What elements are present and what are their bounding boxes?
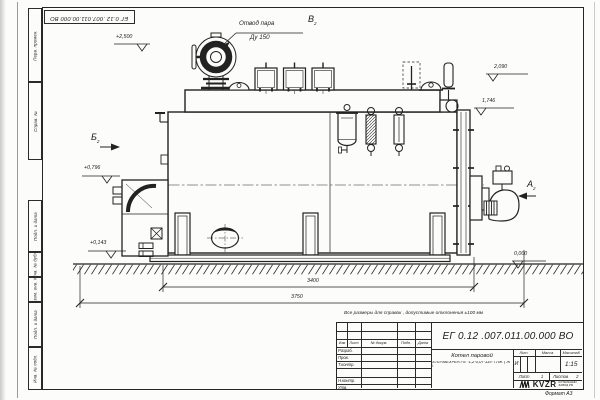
- tb-line: [337, 368, 431, 369]
- view-arrow-a: [518, 193, 536, 200]
- tb-sheets-cell: Листов 2: [549, 372, 582, 380]
- safety-valve-1: [255, 63, 277, 95]
- tb-col-list: Лист: [347, 339, 361, 347]
- tb-col-izm: Изм: [337, 339, 347, 347]
- safety-valve-3: [312, 63, 334, 95]
- kvzr-spring-icon: [519, 380, 531, 388]
- elevation-ground: 0,000: [514, 252, 527, 257]
- tb-sheet-label: Лист: [519, 374, 530, 379]
- tb-line: [527, 356, 528, 372]
- ground-line: [73, 264, 584, 274]
- view-arrow-b: [100, 144, 120, 151]
- tb-line: [397, 323, 398, 388]
- elevation-left-lower: +0,143: [90, 241, 106, 246]
- dimension-3400: 3400: [307, 279, 319, 284]
- view-letter-b: Б2: [91, 133, 99, 144]
- tb-doc-number: ЕГ 0.12 .007.011.00.000 ВО: [433, 325, 583, 347]
- tb-brand-cell: KVZR КОТЕЛЬНЫЙ ЗАВОД РФ: [513, 380, 582, 388]
- tb-row-approved: Утв.: [338, 384, 360, 391]
- tb-lit-label: Лит.: [513, 350, 535, 356]
- view-letter-v-sheet: 2: [314, 21, 317, 26]
- elevation-right-lower: 1,746: [482, 99, 495, 104]
- reference-note: Все размеры для справок , допустимые отк…: [344, 312, 483, 317]
- callout-steam-outlet: Отвод пара: [239, 21, 274, 27]
- tb-line: [337, 331, 431, 332]
- tb-brand-name: KVZR: [533, 380, 557, 388]
- tb-row-checked: Пров.: [338, 354, 360, 361]
- drawing-sheet: Перв. примен. Справ. № Подп. и дата Инв.…: [0, 0, 600, 400]
- tb-line: [431, 323, 432, 388]
- tb-mass-label: Масса: [535, 350, 560, 356]
- title-block: Изм Лист № докум. Подп. Дата Разраб. Про…: [336, 322, 584, 390]
- tb-sheets-value: 2: [576, 374, 578, 379]
- callout-dn150: Ду 150: [250, 35, 270, 41]
- front-fittings: [113, 113, 168, 257]
- tb-line: [415, 323, 416, 388]
- elevation-right-upper: 2,090: [494, 65, 507, 70]
- dimension-3750: 3750: [291, 295, 303, 300]
- tb-sheet-cell: Лист 1: [513, 372, 549, 380]
- tb-line: [520, 356, 521, 372]
- format-label: Формат А3: [545, 392, 572, 397]
- tb-lit-value: И: [513, 357, 520, 371]
- tb-row-tcontrol: Т.контр.: [338, 361, 360, 368]
- elevation-top: +2,500: [116, 35, 132, 40]
- view-letter-b-sheet: 2: [97, 139, 100, 144]
- burner-assembly: [470, 166, 519, 221]
- safety-valve-boxes: [255, 63, 334, 95]
- view-letter-a-sheet: 2: [533, 186, 536, 191]
- view-letter-v: В2: [308, 15, 317, 26]
- steam-outlet-valve: [192, 33, 249, 90]
- safety-valve-2: [284, 63, 306, 95]
- tb-product-name: Котел паровой: [433, 352, 511, 360]
- tb-scale-value: 1:15: [560, 357, 582, 371]
- tb-row-developed: Разраб.: [338, 347, 360, 354]
- tb-col-doc: № докум.: [361, 339, 397, 347]
- tb-col-sign: Подп.: [397, 339, 415, 347]
- tb-line: [361, 323, 362, 388]
- view-letter-a: А2: [527, 180, 536, 191]
- tb-row-ncontrol: Н.контр.: [338, 377, 360, 384]
- tb-brand-line2: ЗАВОД РФ: [559, 384, 577, 387]
- tb-col-date: Дата: [415, 339, 431, 347]
- tb-product-model: STEAMEXPERT-Е -1,2-0,07-115- ГЛЖ ( Ж ): [432, 361, 512, 367]
- elevation-left-upper: +0,796: [84, 166, 100, 171]
- tb-sheets-label: Листов: [553, 374, 568, 379]
- tb-sheet-value: 1: [541, 374, 543, 379]
- tb-scale-label: Масштаб: [560, 350, 582, 356]
